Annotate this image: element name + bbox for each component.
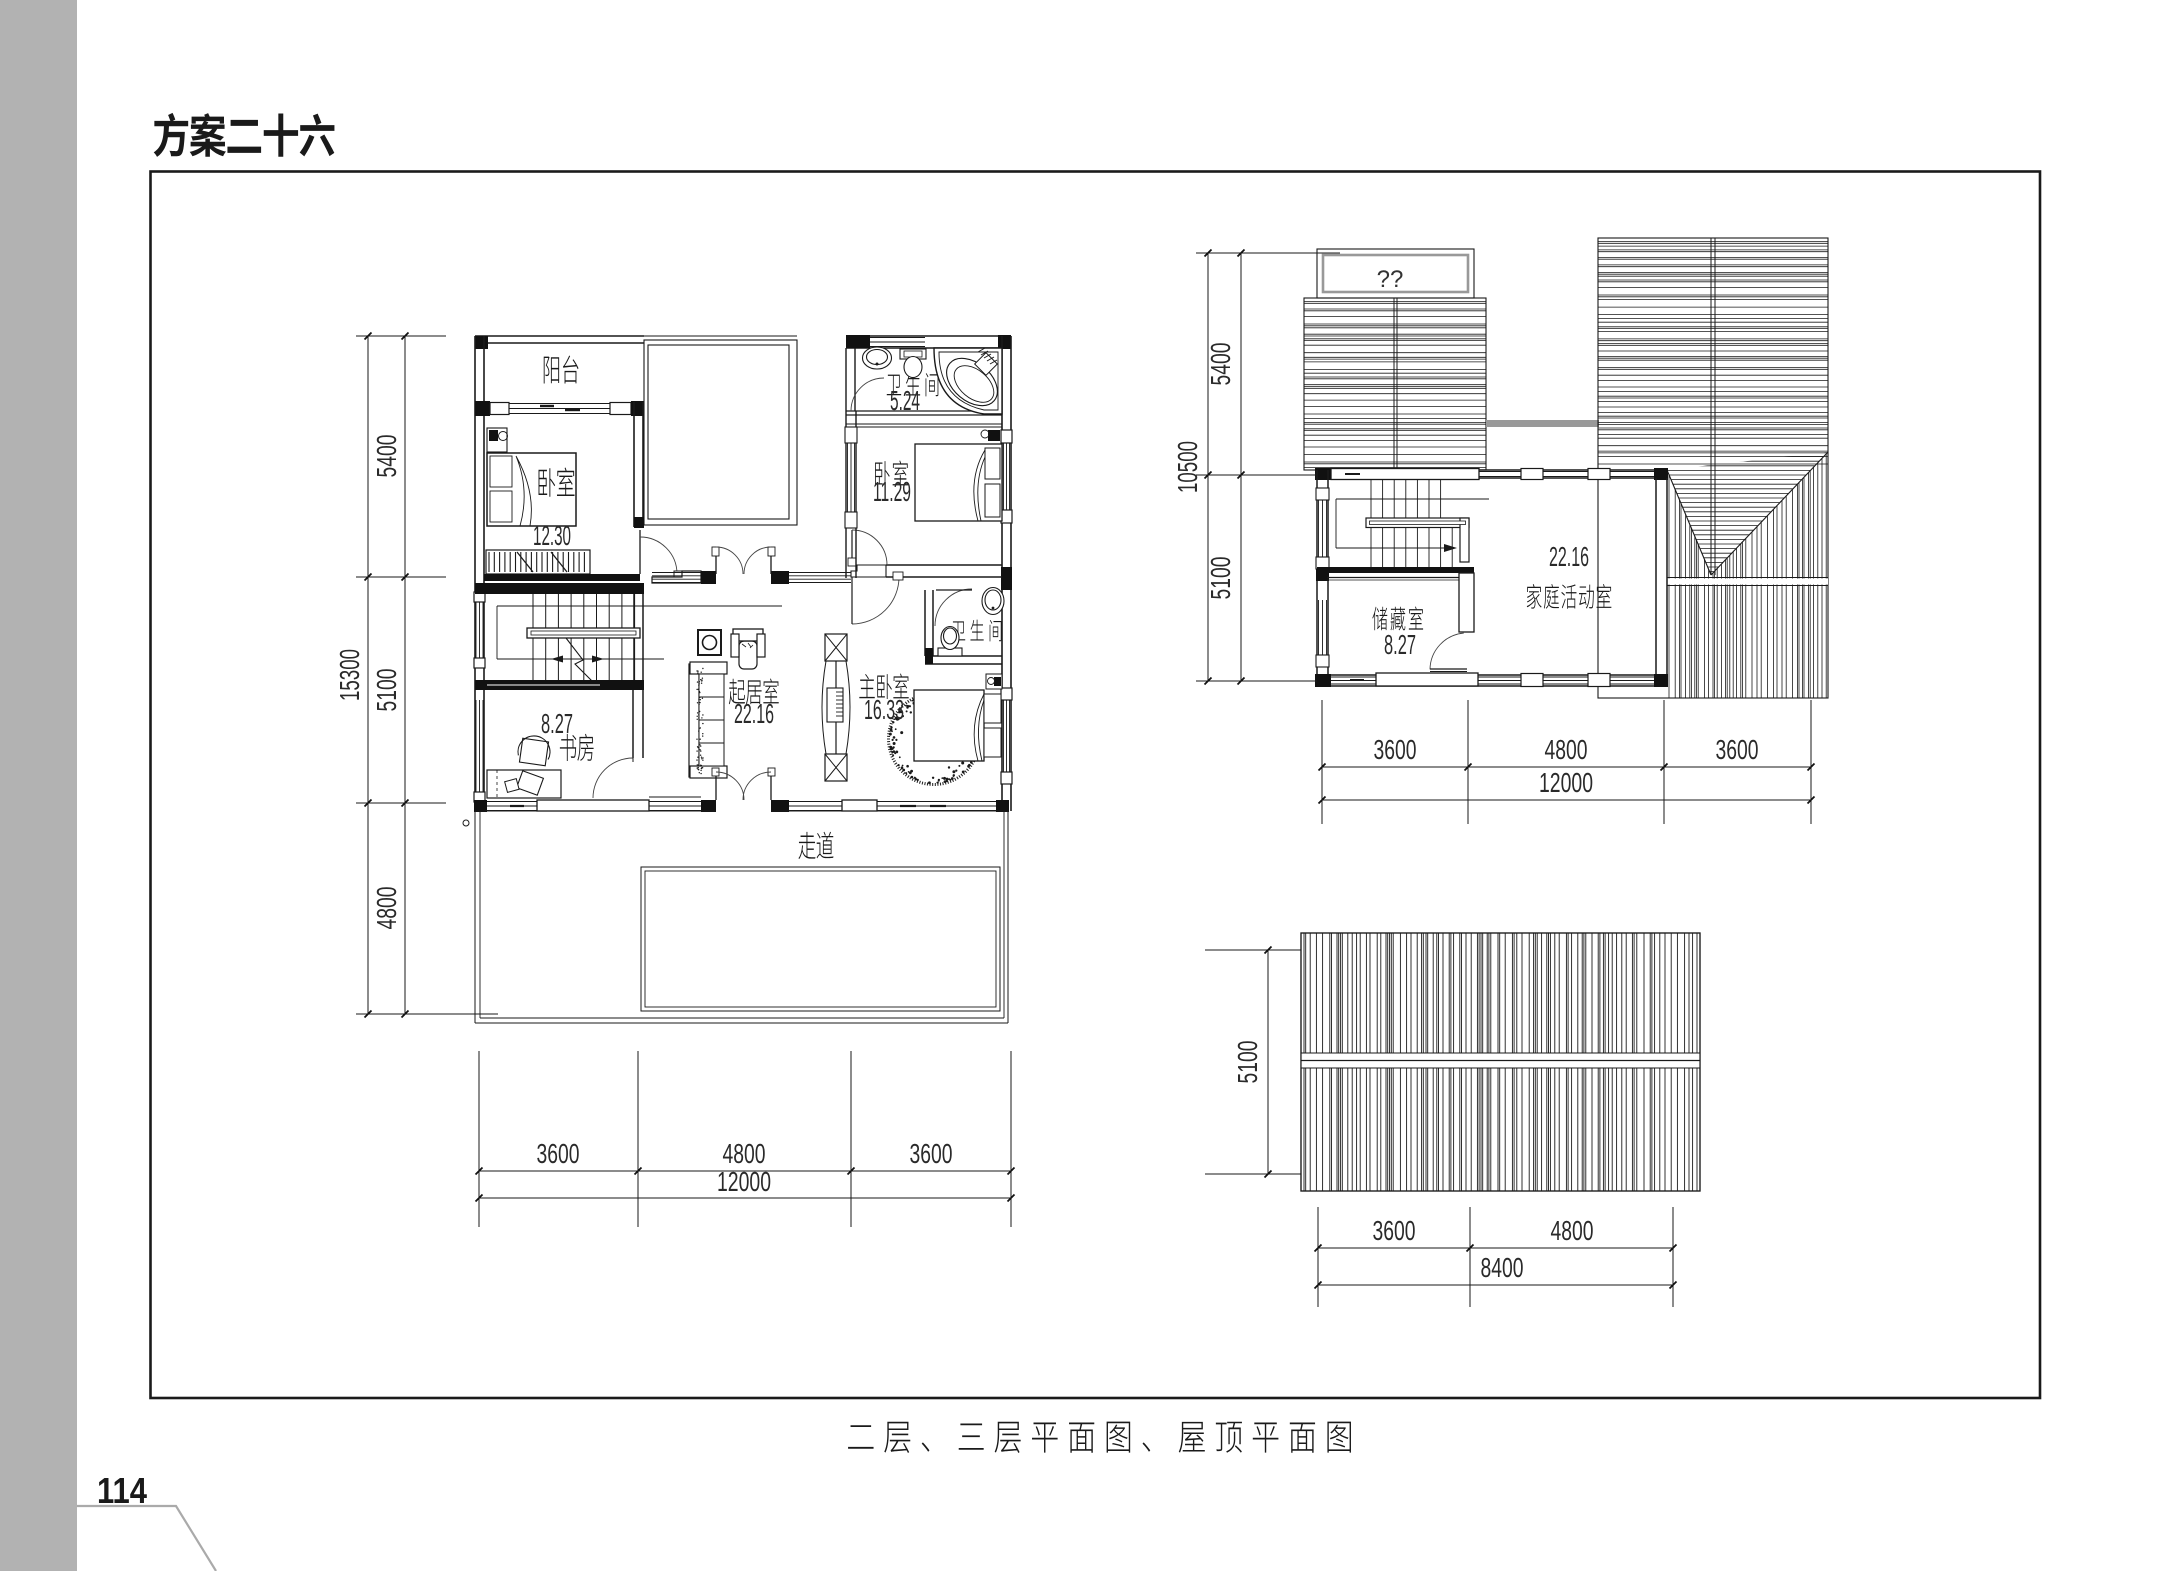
svg-text:12.30: 12.30: [533, 520, 571, 551]
svg-text:4800: 4800: [1545, 734, 1588, 765]
svg-text:22.16: 22.16: [734, 698, 774, 729]
svg-text:5100: 5100: [371, 669, 402, 712]
svg-text:3600: 3600: [910, 1138, 953, 1169]
svg-text:16.33: 16.33: [864, 694, 904, 725]
svg-text:4800: 4800: [371, 887, 402, 930]
svg-text:22.16: 22.16: [1549, 541, 1589, 572]
svg-text:15300: 15300: [334, 649, 365, 701]
svg-text:10500: 10500: [1172, 441, 1203, 493]
svg-text:8.27: 8.27: [541, 708, 573, 739]
svg-text:5100: 5100: [1232, 1041, 1263, 1084]
svg-text:3600: 3600: [1716, 734, 1759, 765]
svg-text:3600: 3600: [537, 1138, 580, 1169]
svg-text:114: 114: [97, 1470, 147, 1511]
svg-text:8.27: 8.27: [1384, 629, 1416, 660]
svg-text:11.29: 11.29: [873, 476, 911, 507]
svg-text:4800: 4800: [723, 1138, 766, 1169]
svg-text:12000: 12000: [1539, 767, 1593, 798]
svg-text:??: ??: [1377, 266, 1404, 293]
svg-text:12000: 12000: [717, 1166, 771, 1197]
svg-text:3600: 3600: [1374, 734, 1417, 765]
svg-text:8400: 8400: [1481, 1252, 1524, 1283]
svg-text:5400: 5400: [371, 435, 402, 478]
svg-text:3600: 3600: [1373, 1215, 1416, 1246]
svg-text:5400: 5400: [1205, 343, 1236, 386]
svg-text:4800: 4800: [1551, 1215, 1594, 1246]
svg-text:5100: 5100: [1205, 557, 1236, 600]
